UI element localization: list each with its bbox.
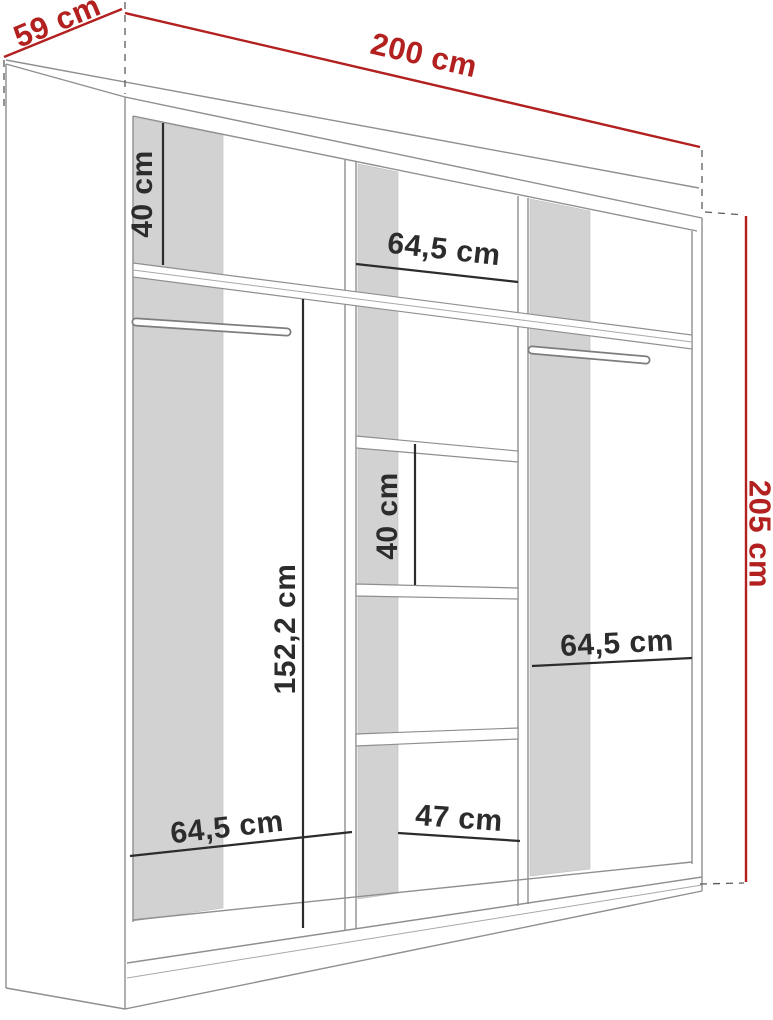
- dim-middle-shelf-gap-label: 40 cm: [373, 472, 403, 560]
- dim-hanging-height-label: 152,2 cm: [271, 564, 301, 695]
- dim-line-width: [125, 13, 700, 147]
- right-section-shade: [530, 199, 590, 876]
- dim-right-width-label: 64,5 cm: [559, 626, 674, 662]
- back-panel-shading: [133, 117, 590, 921]
- ext-height-top: [705, 212, 744, 215]
- diagram-stage: 59 cm 200 cm 205 cm 40 cm 64,5 cm 40 cm …: [0, 0, 773, 1020]
- dim-left-top-shelf-label: 40 cm: [128, 150, 158, 238]
- ext-height-bottom: [700, 883, 744, 884]
- wardrobe-dimension-diagram: { "title": "Wardrobe interior dimension …: [0, 0, 773, 1020]
- top-back-edge: [6, 60, 699, 188]
- dim-middle-bottom-width-label: 47 cm: [414, 801, 503, 837]
- middle-shelf-3: [356, 584, 518, 599]
- dim-height-label: 205 cm: [745, 480, 773, 588]
- wardrobe-outline: [6, 60, 702, 1009]
- side-bottom-edge: [6, 988, 125, 1009]
- side-top-edge: [6, 64, 125, 97]
